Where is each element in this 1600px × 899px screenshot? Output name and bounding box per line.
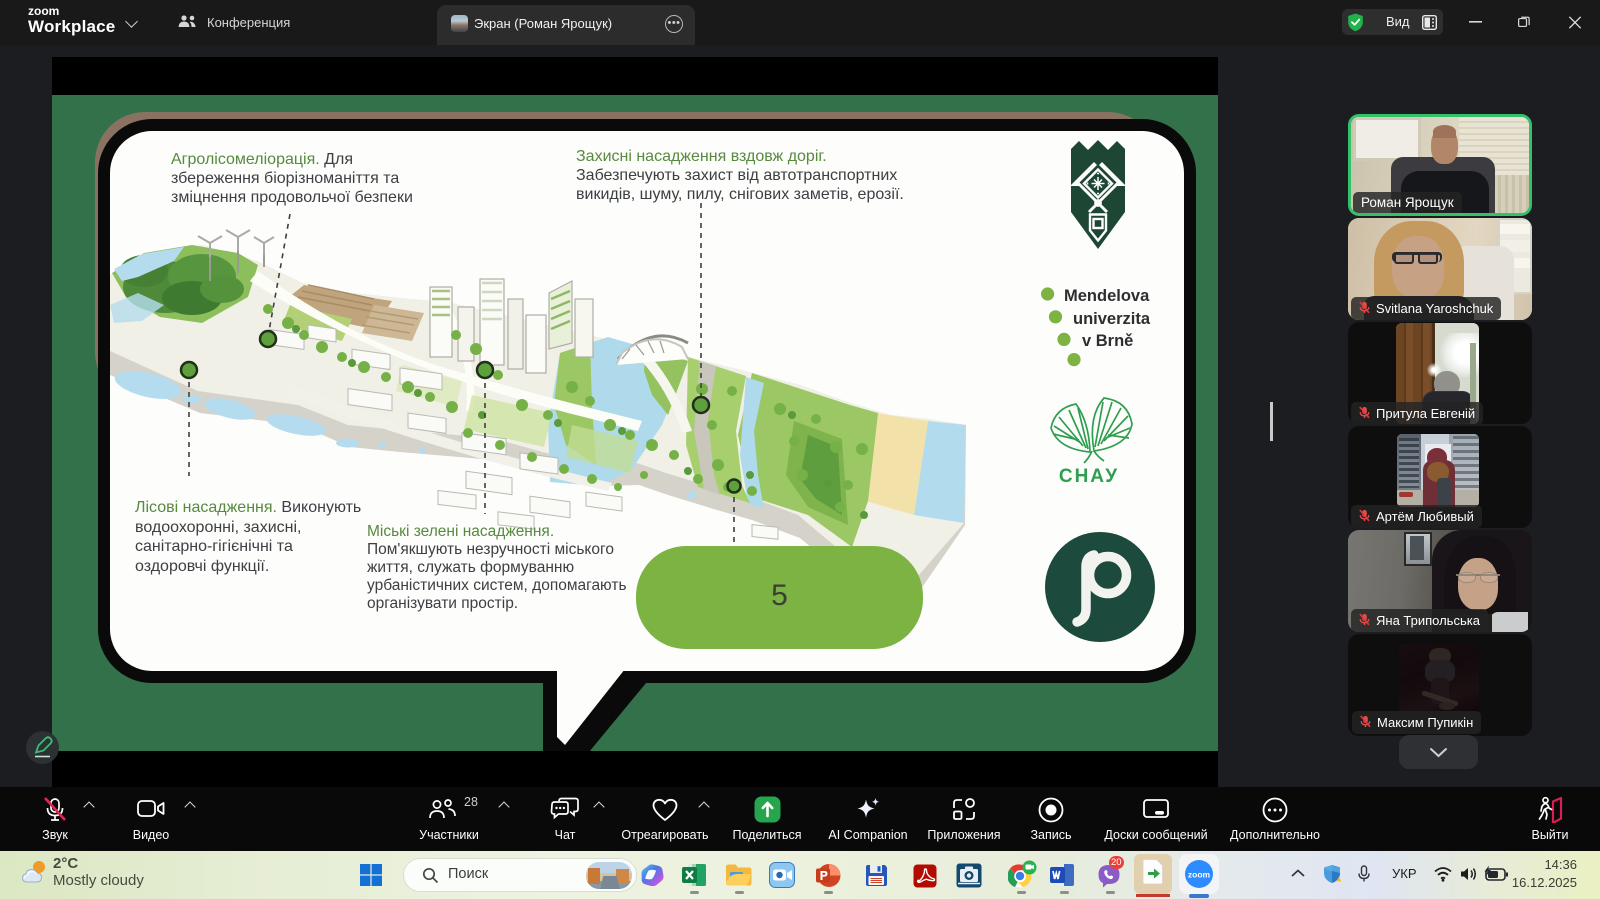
svg-text:zoom: zoom (1188, 870, 1211, 880)
